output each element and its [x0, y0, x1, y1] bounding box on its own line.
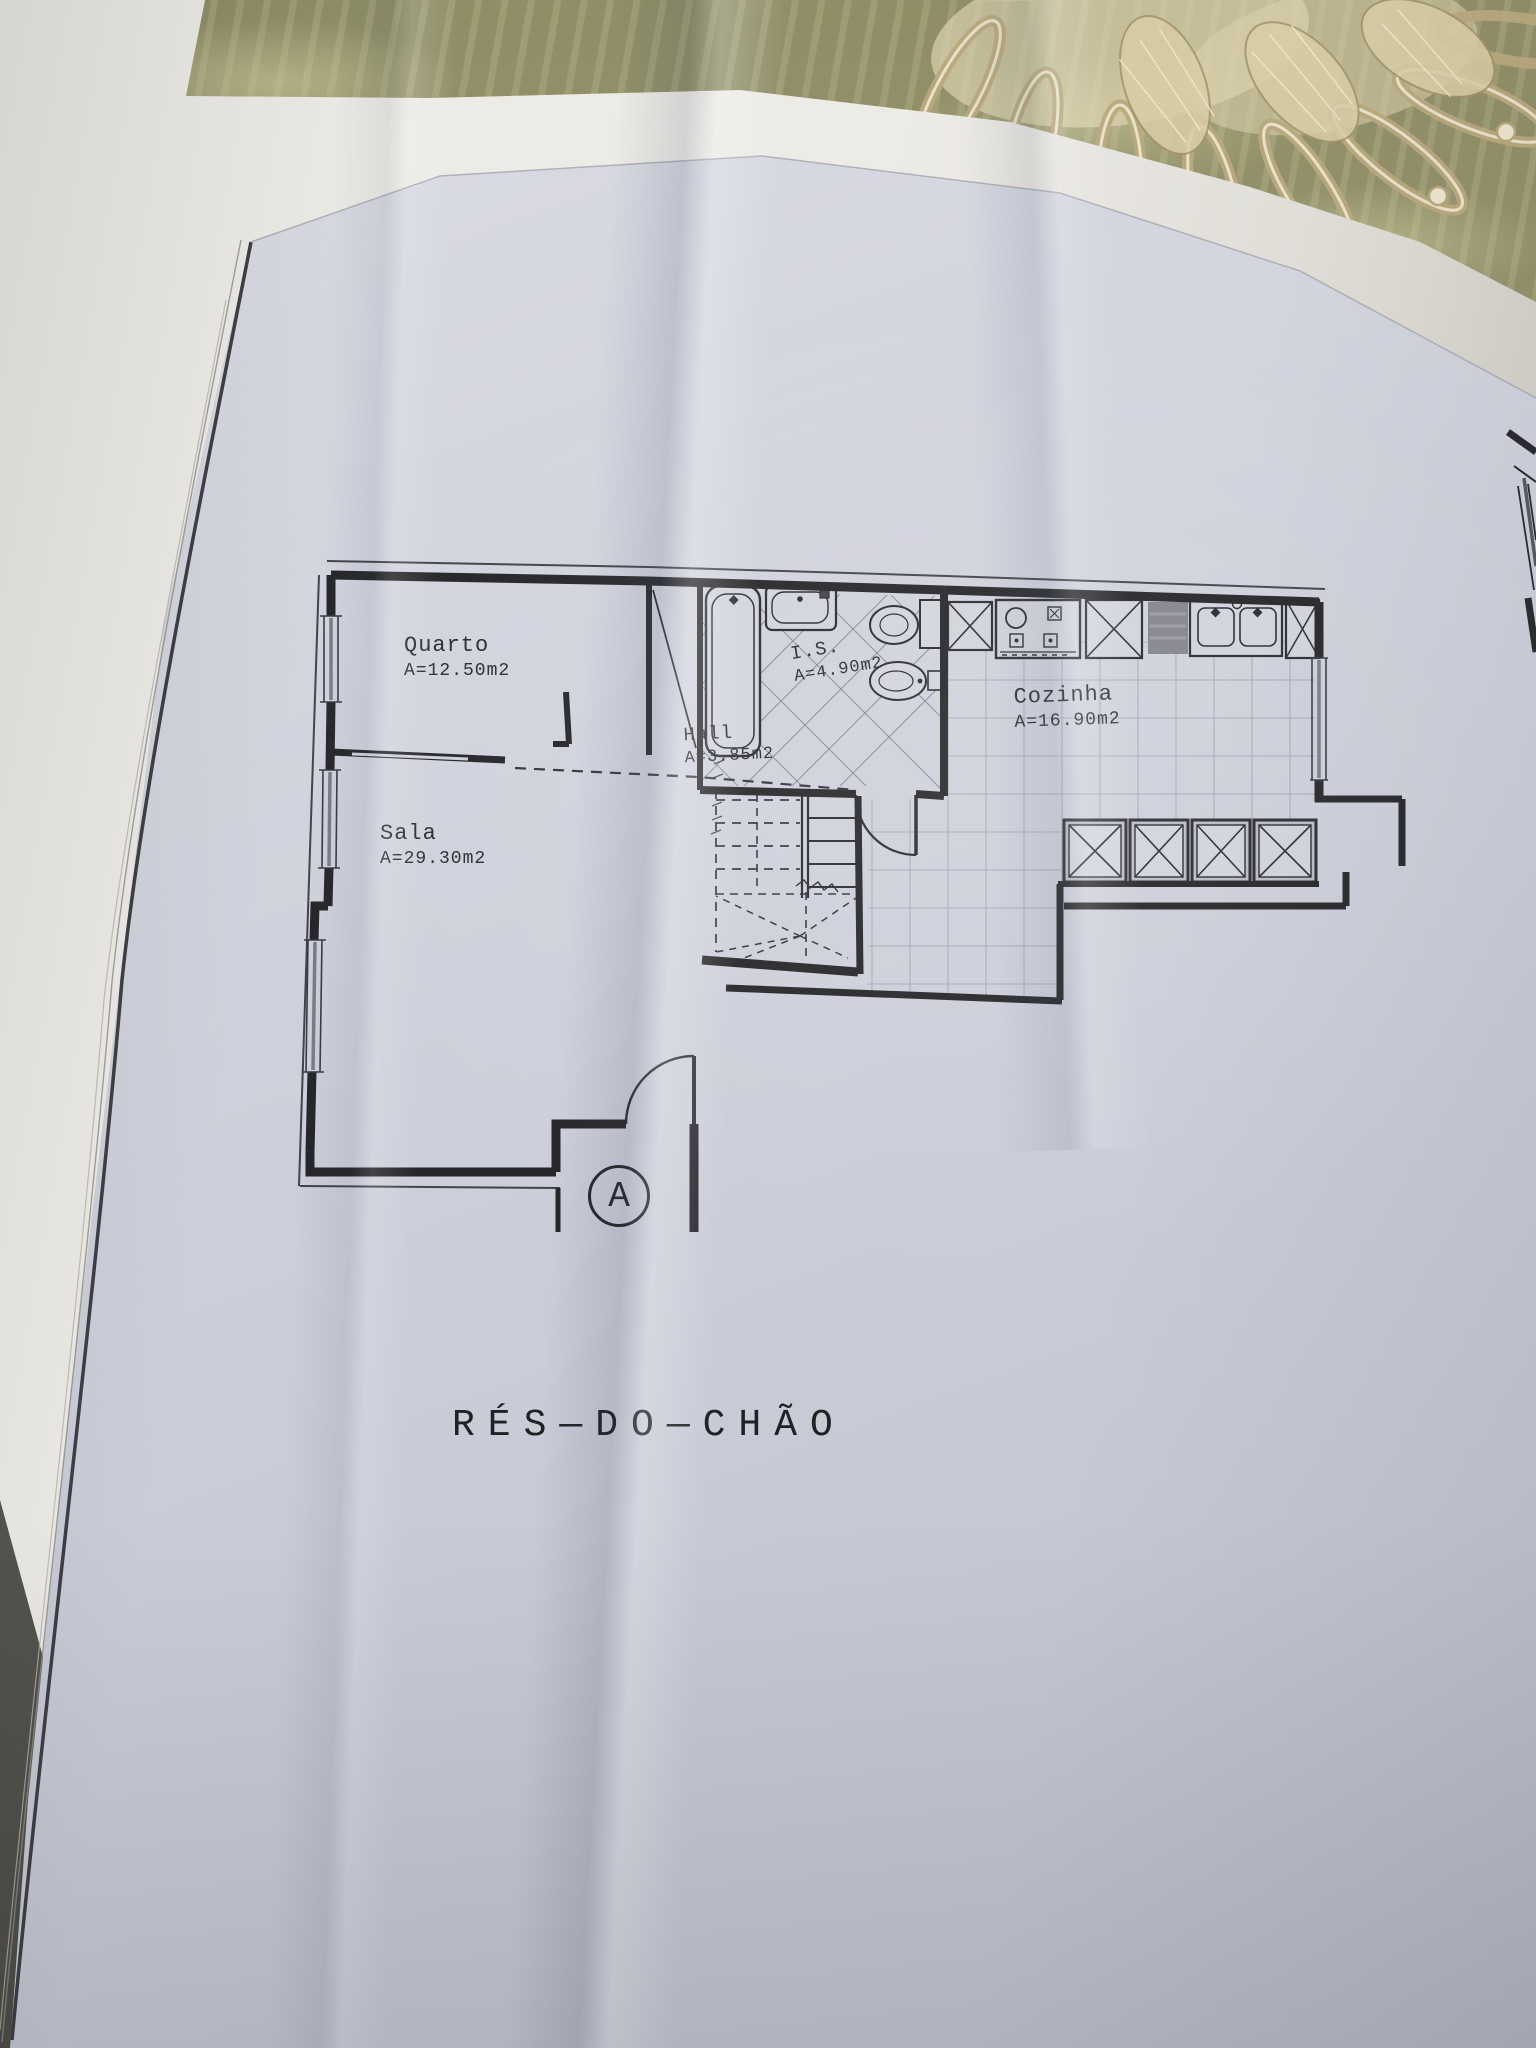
- room-label-hall: Hall A=3.85m2: [683, 720, 775, 770]
- kitchen-counters: [948, 600, 1319, 883]
- room-label-quarto: Quarto A=12.50m2: [404, 632, 510, 682]
- room-name: Quarto: [404, 632, 510, 660]
- room-name: Cozinha: [1013, 680, 1120, 711]
- corner-cabinet-right: [1286, 600, 1319, 658]
- floor-plan-drawing: [0, 0, 1536, 2048]
- staircase: [796, 792, 856, 898]
- room-area: A=29.30m2: [380, 848, 486, 871]
- double-sink: [1190, 600, 1282, 657]
- corner-cabinet: [948, 602, 992, 650]
- room-label-sala: Sala A=29.30m2: [380, 820, 486, 870]
- upper-x-cabinet: [1086, 600, 1142, 658]
- floor-title: RÉS—DO—CHÃO: [452, 1404, 846, 1447]
- lower-cabinets: [1064, 820, 1316, 882]
- photo-of-floor-plan: Quarto A=12.50m2 I.S. A=4.90m2 Hall A=3.…: [0, 0, 1536, 2048]
- entrance-door-arc: [626, 1056, 694, 1124]
- counter-block: [1148, 602, 1188, 654]
- room-area: A=12.50m2: [404, 660, 510, 683]
- section-marker-a: A: [588, 1165, 650, 1227]
- room-name: Sala: [380, 820, 486, 848]
- bathroom-door-arc: [856, 795, 916, 855]
- room-label-cozinha: Cozinha A=16.90m2: [1013, 680, 1121, 734]
- adjacent-page-plan-fragment: [1508, 432, 1536, 652]
- section-marker-letter: A: [608, 1176, 630, 1217]
- room-area: A=16.90m2: [1014, 708, 1121, 734]
- stove: [996, 600, 1080, 658]
